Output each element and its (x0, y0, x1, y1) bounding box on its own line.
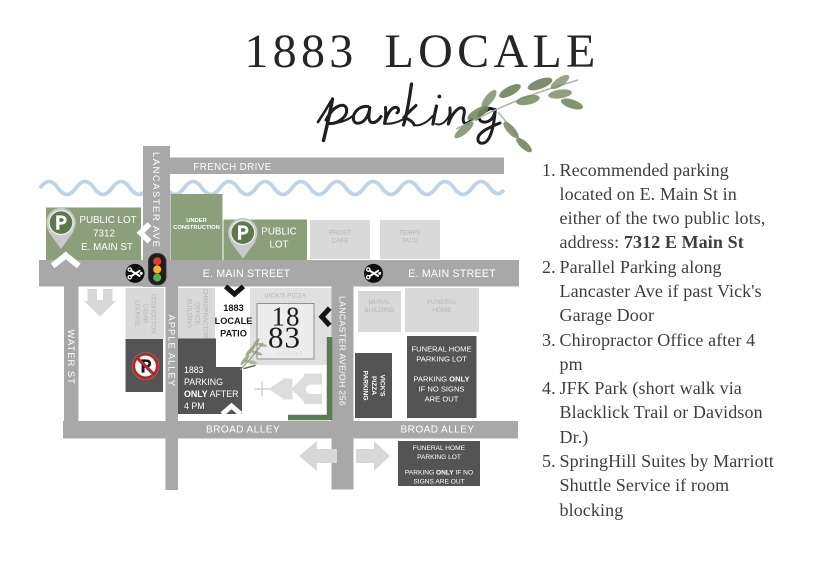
svg-text:4 PM: 4 PM (184, 401, 205, 411)
svg-text:E. MAIN STREET: E. MAIN STREET (408, 268, 496, 280)
svg-text:VICK'S: VICK'S (379, 375, 386, 397)
svg-text:LOCALE: LOCALE (215, 316, 253, 326)
svg-text:1883: 1883 (184, 365, 204, 375)
svg-text:LOUNGE: LOUNGE (134, 300, 141, 326)
svg-text:WATER ST: WATER ST (66, 330, 77, 385)
svg-text:CONSTRUCTION: CONSTRUCTION (173, 225, 220, 231)
svg-text:FRENCH DRIVE: FRENCH DRIVE (193, 162, 271, 173)
svg-text:LANCASTER AVE/OH 256: LANCASTER AVE/OH 256 (338, 296, 348, 406)
svg-text:PARKING LOT: PARKING LOT (416, 355, 467, 364)
svg-text:E. MAIN ST: E. MAIN ST (81, 242, 133, 253)
svg-text:OFFICE: OFFICE (194, 302, 201, 325)
svg-text:E. MAIN STREET: E. MAIN STREET (203, 268, 291, 280)
svg-text:CAFE: CAFE (331, 238, 348, 245)
svg-text:PARKING ONLY: PARKING ONLY (413, 375, 469, 384)
svg-text:SIGNS ARE OUT: SIGNS ARE OUT (413, 479, 464, 486)
svg-text:BUILDING: BUILDING (364, 307, 394, 314)
svg-text:TEMPE: TEMPE (399, 230, 421, 237)
svg-text:PARKING: PARKING (184, 377, 223, 387)
svg-text:ARE OUT: ARE OUT (425, 395, 459, 404)
svg-text:PARKING ONLY IF NO: PARKING ONLY IF NO (405, 470, 473, 477)
svg-text:PROST: PROST (329, 230, 351, 237)
svg-text:CHIROPRACTOR: CHIROPRACTOR (202, 288, 209, 339)
svg-text:PARKING: PARKING (362, 371, 369, 401)
svg-text:PUBLIC LOT: PUBLIC LOT (79, 215, 136, 226)
svg-text:PUBLIC: PUBLIC (261, 227, 296, 238)
svg-text:PIZZA: PIZZA (370, 376, 377, 395)
svg-text:VICK'S PIZZA: VICK'S PIZZA (264, 293, 306, 300)
svg-text:83: 83 (268, 320, 301, 355)
svg-text:COSHOCTON: COSHOCTON (150, 293, 157, 333)
svg-text:BROAD ALLEY: BROAD ALLEY (206, 425, 280, 436)
svg-text:BUILDING: BUILDING (186, 299, 193, 328)
svg-text:MURAL: MURAL (368, 299, 391, 306)
svg-text:LANCASTER AVE: LANCASTER AVE (150, 152, 161, 248)
svg-text:IF NO SIGNS: IF NO SIGNS (419, 385, 465, 394)
svg-text:FUNERAL HOME: FUNERAL HOME (413, 445, 466, 452)
svg-text:7312: 7312 (93, 229, 115, 240)
svg-text:FUNERAL HOME: FUNERAL HOME (411, 345, 471, 354)
svg-text:CIGAR: CIGAR (142, 304, 149, 324)
svg-text:TACO: TACO (401, 238, 418, 245)
svg-text:UNDER: UNDER (186, 218, 207, 224)
svg-text:LOCALE: LOCALE (278, 351, 303, 356)
svg-text:APPLE ALLEY: APPLE ALLEY (166, 315, 177, 388)
svg-text:1883: 1883 (223, 303, 243, 313)
svg-text:FUNERAL: FUNERAL (427, 299, 457, 306)
svg-text:LOT: LOT (269, 240, 288, 251)
svg-text:HOME: HOME (432, 307, 451, 314)
svg-text:BROAD ALLEY: BROAD ALLEY (401, 425, 475, 436)
svg-text:ONLY AFTER: ONLY AFTER (184, 389, 238, 399)
svg-text:PATIO: PATIO (220, 329, 247, 339)
svg-text:PARKING LOT: PARKING LOT (417, 454, 461, 461)
